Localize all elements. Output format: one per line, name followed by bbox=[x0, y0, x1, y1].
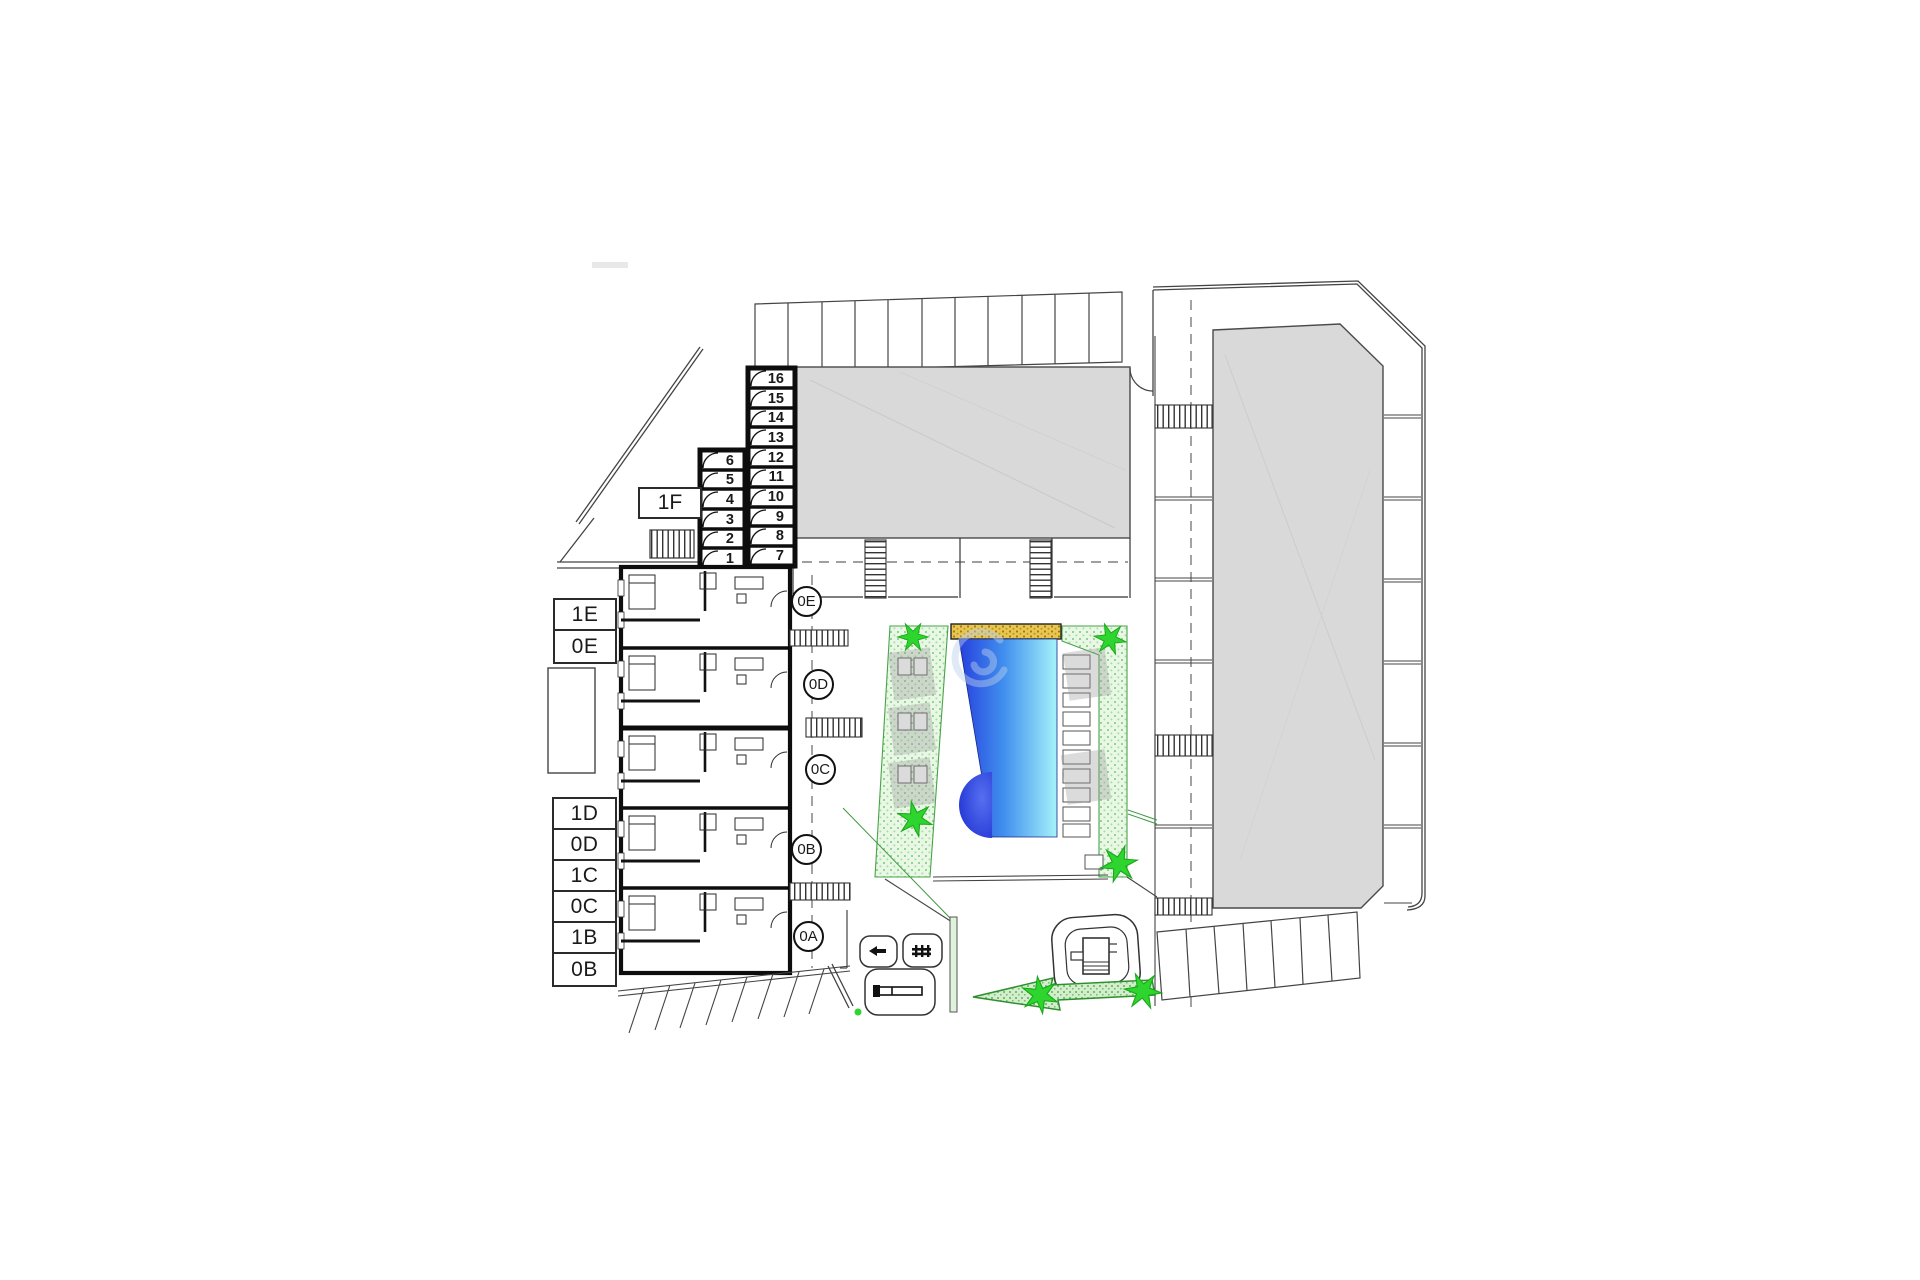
plan-linework bbox=[0, 0, 1920, 1280]
stairs-icon bbox=[806, 718, 862, 737]
stairs-icon bbox=[1155, 735, 1212, 756]
tree-icon bbox=[855, 1009, 862, 1016]
building-top-centre bbox=[793, 367, 1153, 598]
garage-stall-number: 2 bbox=[701, 530, 738, 549]
amenity-zone bbox=[840, 910, 1155, 1015]
garage-stall-number: 14 bbox=[749, 409, 788, 428]
unit-label-1e: 1E bbox=[555, 600, 615, 631]
unit-label-1d: 1D bbox=[554, 799, 615, 830]
unit-label-0d: 0D bbox=[554, 830, 615, 861]
stairs-icon bbox=[790, 630, 848, 646]
unit-label-0e: 0E bbox=[555, 631, 615, 662]
entrance-circle-0d: 0D bbox=[803, 669, 834, 700]
garage-stall-number: 16 bbox=[749, 370, 788, 389]
garage-stall-number: 9 bbox=[749, 508, 788, 527]
balcony-dividers bbox=[1384, 415, 1421, 903]
stairs-icon bbox=[650, 530, 694, 558]
garage-stall-number: 11 bbox=[749, 468, 788, 487]
door-swing-icon bbox=[1130, 368, 1153, 391]
parking-row-bottom-right bbox=[1157, 912, 1360, 1000]
terrace-outline bbox=[548, 668, 595, 773]
parking-row-bottom-left bbox=[618, 966, 850, 1033]
entrance-circle-0e: 0E bbox=[791, 586, 822, 617]
unit-label-1f: 1F bbox=[638, 487, 702, 519]
garage-stall-number: 12 bbox=[749, 449, 788, 468]
garage-stall-number: 8 bbox=[749, 527, 788, 546]
garage-stall-number: 6 bbox=[701, 452, 738, 471]
unit-label-1f-text: 1F bbox=[658, 491, 683, 515]
stairs-icon bbox=[865, 540, 886, 598]
garage-stall-number: 1 bbox=[701, 550, 738, 569]
garage-stall-number: 7 bbox=[749, 547, 788, 566]
garage-stall-number: 5 bbox=[701, 471, 738, 490]
stairs-icon bbox=[1030, 540, 1051, 598]
garage-stall-number: 15 bbox=[749, 390, 788, 409]
unit-label-1c: 1C bbox=[554, 861, 615, 892]
stairs-icon bbox=[1155, 405, 1212, 428]
stairs-icon bbox=[790, 883, 850, 900]
unit-label-0b: 0B bbox=[554, 954, 615, 985]
garage-stall-number: 3 bbox=[701, 511, 738, 530]
garage-stall-number: 4 bbox=[701, 491, 738, 510]
entrance-circle-0a: 0A bbox=[793, 921, 824, 952]
site-plan-canvas: 1F 1E 0E 1D 0D 1C 0C 1B 0B 0E 0D 0C 0B 0… bbox=[0, 0, 1920, 1280]
garage-stall-number: 13 bbox=[749, 429, 788, 448]
stairs-icon bbox=[1155, 898, 1212, 915]
print-artifact bbox=[592, 262, 628, 268]
unit-label-1b: 1B bbox=[554, 923, 615, 954]
building-right bbox=[1155, 324, 1421, 1006]
pool-courtyard bbox=[843, 624, 1157, 922]
entrance-circle-0c: 0C bbox=[805, 754, 836, 785]
unit-label-stack-upper: 1E 0E bbox=[553, 598, 617, 664]
bike-rack-cap bbox=[873, 985, 880, 997]
parking-row-top bbox=[755, 292, 1122, 372]
unit-label-0c: 0C bbox=[554, 892, 615, 923]
pool-step-icon bbox=[959, 772, 992, 838]
entrance-circle-0b: 0B bbox=[791, 834, 822, 865]
bike-rack-bar bbox=[877, 987, 922, 995]
garage-stall-number: 10 bbox=[749, 488, 788, 507]
unit-label-stack-lower: 1D 0D 1C 0C 1B 0B bbox=[552, 797, 617, 987]
green-path bbox=[950, 917, 957, 1012]
